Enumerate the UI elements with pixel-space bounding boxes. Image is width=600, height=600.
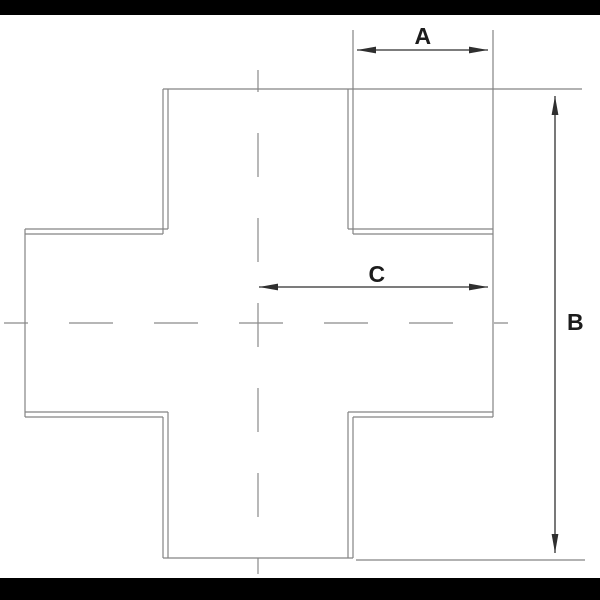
dimension-arrowheads [259, 47, 558, 553]
dim-c-arrow-left-icon [259, 284, 278, 291]
dim-b-arrow-down-icon [552, 534, 559, 553]
cross-dimension-drawing: A B C [0, 0, 600, 600]
dim-c-arrow-right-icon [469, 284, 488, 291]
dim-a-arrow-right-icon [469, 47, 488, 54]
dim-label-a: A [414, 23, 431, 49]
catalog-drawing-image: A B C [0, 0, 600, 600]
centerlines [4, 70, 508, 574]
dim-b-arrow-up-icon [552, 96, 559, 115]
dim-a-arrow-left-icon [357, 47, 376, 54]
part-lines [25, 30, 585, 560]
dim-label-b: B [567, 309, 584, 335]
dimension-lines [259, 50, 555, 553]
dim-label-c: C [368, 261, 385, 287]
